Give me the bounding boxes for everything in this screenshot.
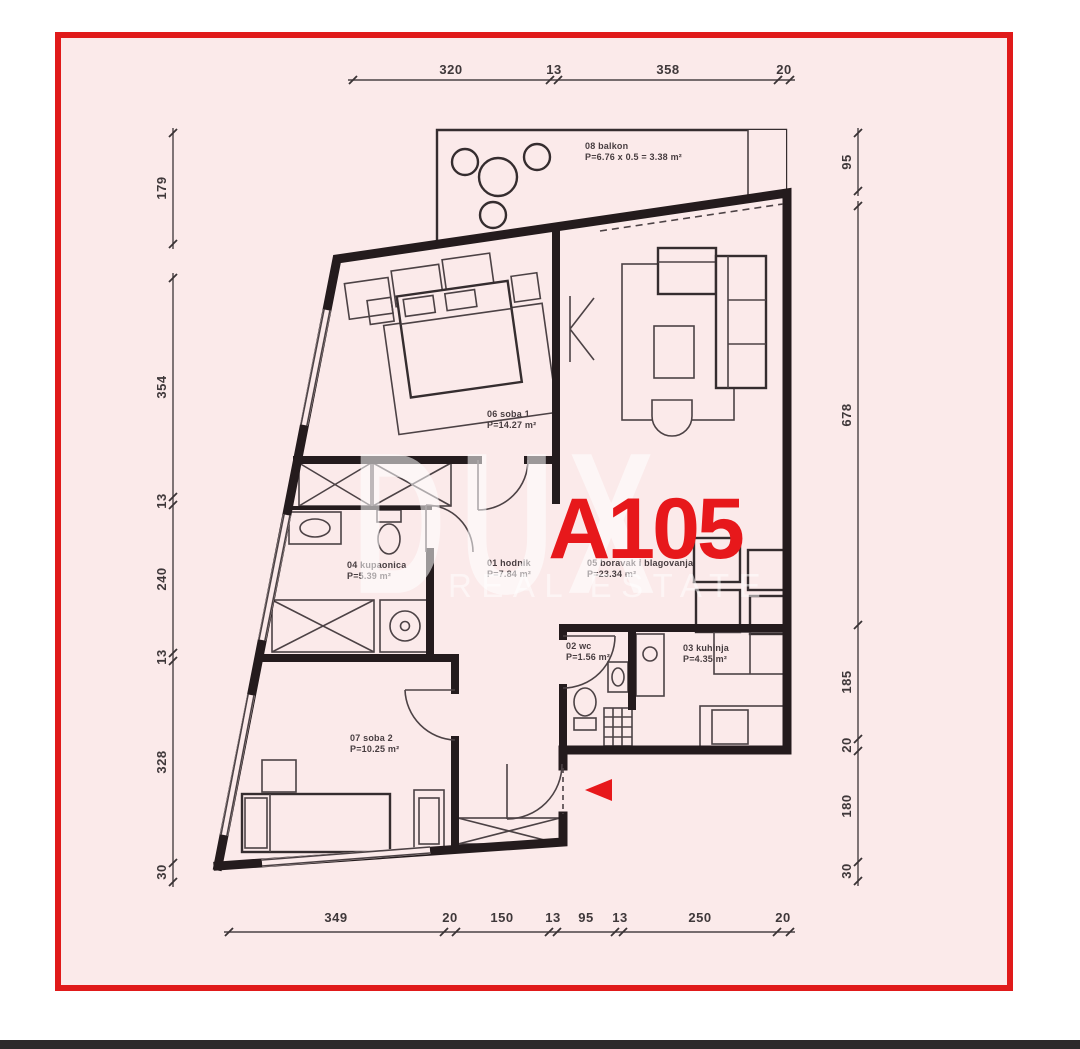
dim-right-30: 30 bbox=[839, 863, 854, 878]
room-label-balkon: 08 balkon bbox=[585, 141, 628, 151]
dim-top-13: 13 bbox=[546, 62, 561, 77]
bottom-bar bbox=[0, 1040, 1080, 1049]
dim-bottom-13b: 13 bbox=[612, 910, 627, 925]
dim-left-179: 179 bbox=[154, 176, 169, 199]
nightstand bbox=[262, 760, 296, 792]
sofa-icon bbox=[658, 248, 716, 294]
dim-bottom-349: 349 bbox=[324, 910, 347, 925]
dim-bottom-250: 250 bbox=[688, 910, 711, 925]
dim-right-95: 95 bbox=[839, 154, 854, 169]
dim-right-185: 185 bbox=[839, 670, 854, 693]
kitchen-unit bbox=[636, 634, 664, 696]
door-symbol bbox=[570, 296, 594, 362]
chair-icon bbox=[480, 202, 506, 228]
room-area-soba2: P=10.25 m² bbox=[350, 744, 399, 754]
chair-icon bbox=[452, 149, 478, 175]
room-label-wc: 02 wc bbox=[566, 641, 592, 651]
unit-number-label: A105 bbox=[548, 481, 743, 577]
room-area-balkon: P=6.76 x 0.5 = 3.38 m² bbox=[585, 152, 682, 162]
dim-top-20: 20 bbox=[776, 62, 791, 77]
chair-icon bbox=[524, 144, 550, 170]
nightstand bbox=[511, 273, 540, 302]
sink-icon bbox=[608, 662, 628, 692]
dim-right-678: 678 bbox=[839, 403, 854, 426]
sink-icon bbox=[643, 647, 657, 661]
room-area-wc: P=1.56 m² bbox=[566, 652, 610, 662]
dim-top-320: 320 bbox=[439, 62, 462, 77]
wc-fixtures bbox=[574, 662, 632, 746]
sink-icon bbox=[300, 519, 330, 537]
dim-bottom-150: 150 bbox=[490, 910, 513, 925]
dim-top-358: 358 bbox=[656, 62, 679, 77]
dim-bottom-95: 95 bbox=[578, 910, 593, 925]
dim-left-354: 354 bbox=[154, 375, 169, 398]
stove-icon bbox=[712, 710, 748, 744]
floor-plan-canvas: 320 13 358 20 179 354 13 240 13 328 30 9… bbox=[0, 0, 1080, 1049]
sofa-icon bbox=[716, 256, 766, 388]
entry-door-arc bbox=[507, 764, 562, 819]
door-arc bbox=[405, 690, 455, 740]
entrance-arrow-icon bbox=[585, 779, 612, 801]
dim-right-20: 20 bbox=[839, 737, 854, 752]
bedroom2-furniture bbox=[242, 760, 444, 852]
dim-left-30: 30 bbox=[154, 864, 169, 879]
room-label-soba2: 07 soba 2 bbox=[350, 733, 393, 743]
toilet-tank bbox=[574, 718, 596, 730]
dim-left-240: 240 bbox=[154, 567, 169, 590]
kitchen-counter bbox=[700, 706, 786, 748]
window bbox=[307, 311, 330, 426]
dim-right-180: 180 bbox=[839, 794, 854, 817]
dim-bottom-20: 20 bbox=[442, 910, 457, 925]
window bbox=[265, 516, 290, 641]
room-label-kuhinja: 03 kuhinja bbox=[683, 643, 730, 653]
round-table-icon bbox=[479, 158, 517, 196]
room-area-kuhinja: P=4.35 m² bbox=[683, 654, 727, 664]
coffee-table bbox=[654, 326, 694, 378]
vanity bbox=[289, 512, 341, 544]
dim-left-13b: 13 bbox=[154, 649, 169, 664]
dim-bottom-13: 13 bbox=[545, 910, 560, 925]
dim-left-13: 13 bbox=[154, 493, 169, 508]
bed-icon bbox=[242, 794, 390, 852]
dim-left-328: 328 bbox=[154, 750, 169, 773]
toilet-icon bbox=[574, 688, 596, 716]
dim-bottom-20b: 20 bbox=[775, 910, 790, 925]
interior-wall bbox=[563, 628, 787, 750]
